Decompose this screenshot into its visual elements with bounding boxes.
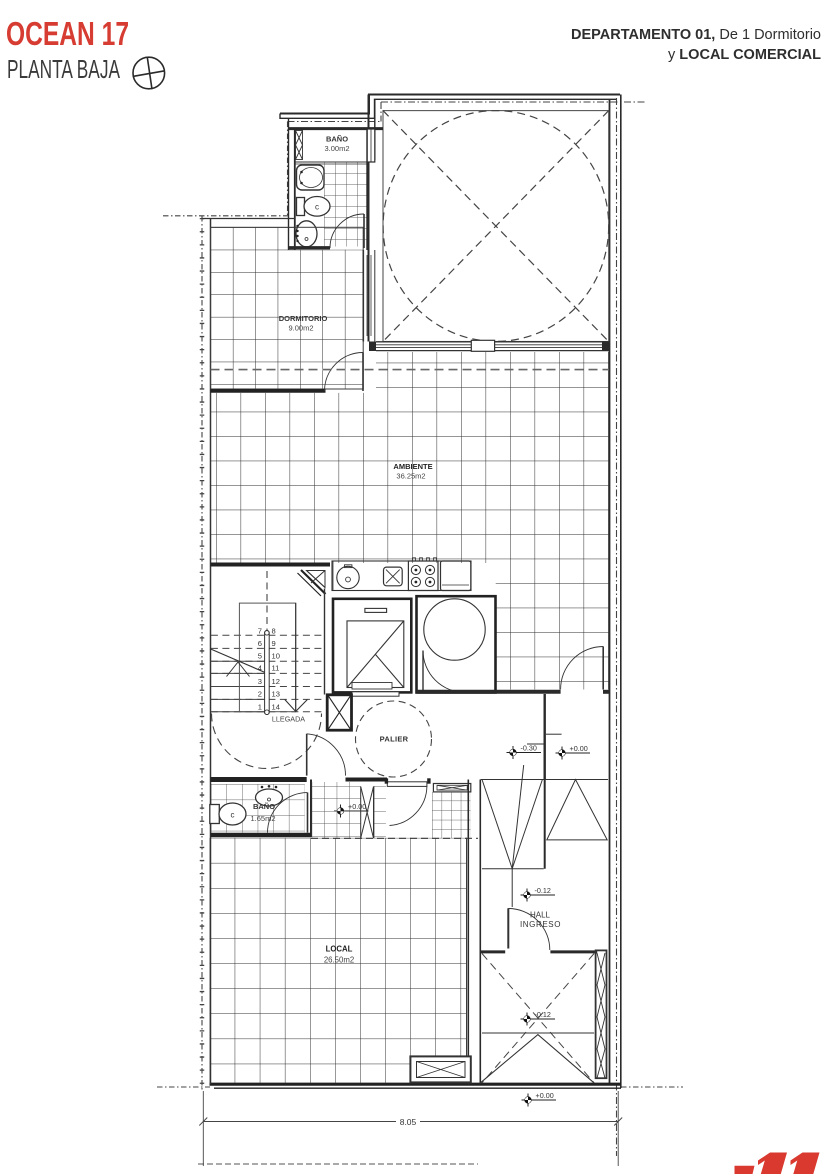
svg-text:c: c [315, 203, 319, 212]
svg-text:2: 2 [258, 690, 262, 699]
svg-text:INGRESO: INGRESO [520, 920, 561, 929]
svg-text:9.00m2: 9.00m2 [288, 324, 313, 333]
svg-text:y LOCAL COMERCIAL: y LOCAL COMERCIAL [668, 46, 821, 63]
svg-text:26.50m2: 26.50m2 [324, 956, 354, 965]
svg-text:11: 11 [272, 664, 280, 673]
svg-text:LLEGADA: LLEGADA [272, 715, 305, 724]
svg-text:OCEAN 17: OCEAN 17 [6, 15, 129, 52]
svg-text:+0.00: +0.00 [536, 1091, 554, 1100]
svg-text:3: 3 [258, 677, 262, 686]
svg-text:HALL: HALL [530, 911, 551, 920]
svg-text:14: 14 [272, 703, 280, 712]
svg-text:DEPARTAMENTO 01, De 1 Dormitor: DEPARTAMENTO 01, De 1 Dormitorio [571, 26, 821, 43]
svg-text:7: 7 [258, 626, 262, 635]
svg-text:DORMITORIO: DORMITORIO [279, 314, 328, 323]
svg-text:LOCAL: LOCAL [326, 945, 353, 954]
svg-text:1: 1 [258, 703, 262, 712]
svg-text:3.00m2: 3.00m2 [324, 144, 349, 153]
svg-text:-0.12: -0.12 [535, 886, 551, 895]
svg-text:13: 13 [272, 690, 280, 699]
svg-text:10: 10 [272, 652, 280, 661]
svg-text:8: 8 [272, 626, 276, 635]
svg-text:12: 12 [272, 677, 280, 686]
svg-text:-0.30: -0.30 [521, 744, 537, 753]
svg-text:+0.00: +0.00 [570, 744, 588, 753]
svg-text:PALIER: PALIER [380, 735, 409, 744]
svg-text:5: 5 [258, 652, 262, 661]
svg-text:AMBIENTE: AMBIENTE [393, 462, 432, 471]
svg-text:9: 9 [272, 639, 276, 648]
svg-text:6: 6 [258, 639, 262, 648]
svg-text:c: c [231, 811, 235, 820]
svg-text:36.25m2: 36.25m2 [396, 472, 425, 481]
svg-text:BAÑO: BAÑO [326, 135, 348, 144]
svg-text:-0.12: -0.12 [535, 1010, 551, 1019]
svg-text:PLANTA BAJA: PLANTA BAJA [7, 54, 120, 84]
svg-text:8.05: 8.05 [400, 1117, 417, 1127]
svg-text:4: 4 [258, 664, 262, 673]
svg-text:BAÑO: BAÑO [253, 802, 275, 811]
